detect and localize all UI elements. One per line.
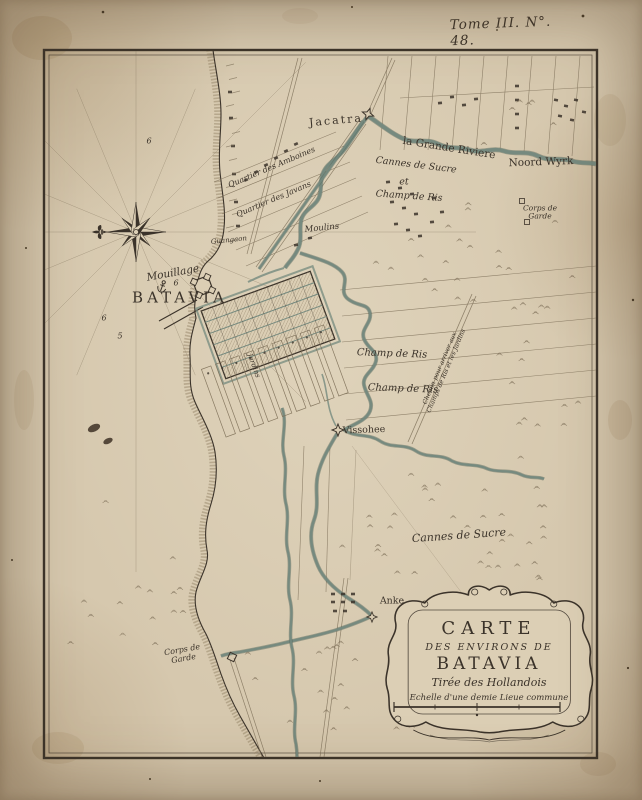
map-label-champ-ris-3: Champ de Ris	[368, 382, 439, 396]
map-label-anke: Anke	[380, 597, 404, 608]
map-label-vissohee: Vissohee	[343, 425, 386, 437]
antique-map-scan: Tome III. N°. 48. Jacatrala Grande Rivie…	[0, 0, 642, 800]
cartouche-subtitle: Tirée des Hollandois	[403, 676, 575, 689]
cartouche-title-line3: BATAVIA	[403, 654, 575, 674]
cartouche-text: CARTE DES ENVIRONS DE BATAVIA Tirée des …	[403, 618, 575, 703]
map-label-jardins: Jardins	[245, 353, 261, 379]
map-label-champ-ris-1: Champ de Ris	[375, 189, 443, 204]
map-label-champ-ris-2: Champ de Ris	[357, 347, 428, 361]
map-label-sounding-2: 6	[173, 280, 178, 289]
map-label-grande-riviere: la Grande Riviere	[402, 136, 496, 162]
map-label-sounding-3: 6	[101, 315, 106, 324]
map-label-mouillage: Mouillage	[146, 264, 200, 285]
map-label-noord-wyrk: Noord Wyrk	[508, 156, 573, 170]
map-label-et: et	[399, 178, 408, 189]
map-label-sounding-1: 6	[146, 138, 151, 147]
map-label-batavia: BATAVIA	[132, 290, 228, 307]
map-label-cannes-sucre-2: Cannes de Sucre	[411, 527, 506, 546]
map-label-sounding-4: 5	[117, 333, 122, 342]
map-label-chemin: Chemin pour arriver aux Champs de Ris et…	[420, 326, 468, 414]
map-label-guangaon: Guangaon	[211, 235, 248, 247]
map-label-cannes-sucre-1: Cannes de Sucre	[375, 156, 457, 176]
cartouche-title-line1: CARTE	[403, 618, 575, 639]
map-label-jacatra: Jacatra	[309, 113, 364, 130]
map-label-moulins: Moulins	[304, 222, 339, 235]
map-label-corps-garde-ne: Corps de Garde	[523, 205, 557, 222]
map-label-corps-garde-sw: Corps de Garde	[164, 643, 203, 667]
cartouche-scale-label: Echelle d'une demie Lieue commune	[403, 693, 575, 703]
cartouche-title-line2: DES ENVIRONS DE	[403, 642, 575, 653]
map-label-quartier-javans: Quartier des Javans	[235, 180, 312, 220]
map-label-quartier-amboines: Quartier des Amboines	[227, 146, 317, 191]
